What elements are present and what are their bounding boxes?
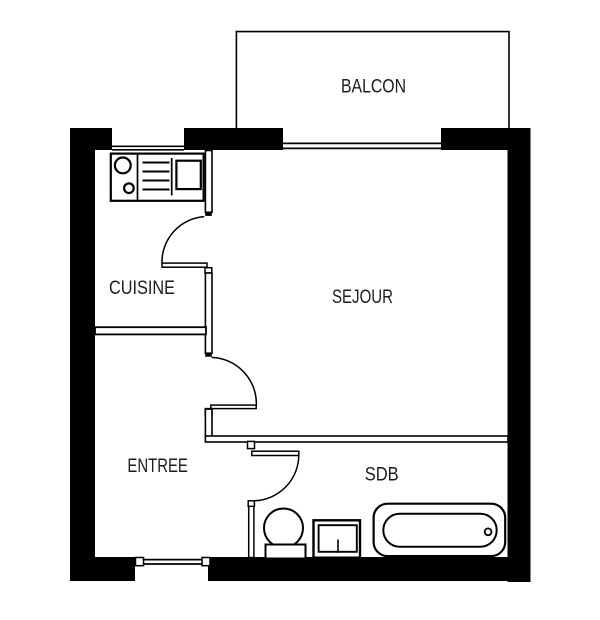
svg-text:CUISINE: CUISINE: [109, 278, 175, 299]
svg-text:SEJOUR: SEJOUR: [332, 287, 393, 308]
svg-text:SDB: SDB: [365, 464, 399, 485]
svg-text:BALCON: BALCON: [341, 77, 406, 98]
svg-text:ENTREE: ENTREE: [127, 456, 187, 477]
